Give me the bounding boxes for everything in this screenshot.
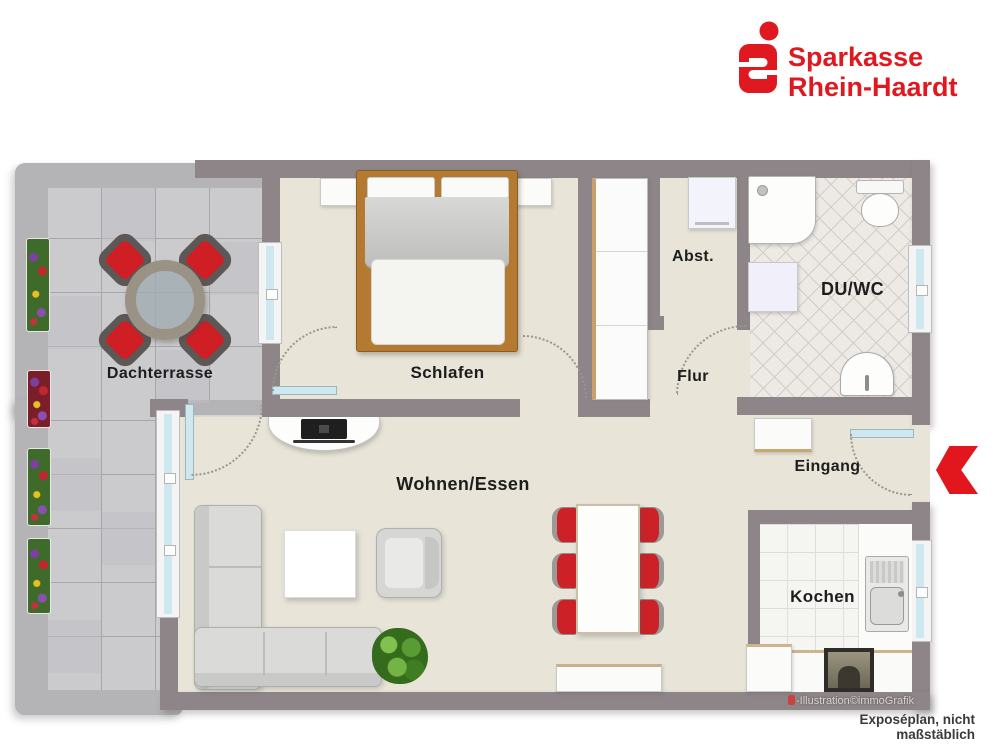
washing-machine	[688, 177, 736, 229]
pillow	[367, 177, 435, 199]
dining-chair	[638, 507, 664, 543]
dining-table	[576, 504, 640, 634]
shower	[748, 176, 816, 244]
credit-text: -Illustration©immoGrafik	[796, 695, 914, 707]
terrace-seating	[103, 238, 227, 362]
dining-chair	[638, 553, 664, 589]
wall-top	[195, 160, 930, 178]
sofa-horizontal	[194, 627, 382, 687]
entrance-arrow-icon	[936, 446, 978, 494]
bathroom-cabinet	[748, 262, 798, 312]
mini-logo-icon	[788, 695, 795, 705]
tv	[301, 419, 347, 439]
room-label-flur: Flur	[660, 368, 726, 386]
wall-kitchen-top	[748, 510, 930, 524]
nightstand	[320, 178, 360, 206]
wall-duwc-bottom	[737, 397, 930, 415]
wall-bedroom-bottom	[262, 399, 520, 417]
room-label-wohnen-essen: Wohnen/Essen	[370, 474, 556, 495]
dining-chair	[552, 599, 578, 635]
entry-cabinet	[754, 418, 812, 452]
flower-box	[27, 448, 51, 526]
terrace-table	[125, 260, 205, 340]
disclaimer: Exposéplan, nicht maßstäblich	[790, 712, 975, 742]
room-label-kochen: Kochen	[770, 587, 875, 607]
room-label-abst: Abst.	[655, 248, 731, 266]
illustration-credit: -Illustration©immoGrafik	[788, 695, 938, 709]
brand-line2: Rhein-Haardt	[788, 72, 958, 102]
wardrobe	[592, 178, 648, 400]
kitchen-cabinet	[746, 644, 792, 692]
flower-box	[27, 370, 51, 428]
dining-chair	[638, 599, 664, 635]
entry-door-gap	[912, 425, 930, 502]
brand-line1: Sparkasse	[788, 42, 958, 72]
pillow	[441, 177, 509, 199]
armchair	[376, 528, 442, 598]
bed	[356, 170, 518, 352]
room-label-schlafen: Schlafen	[385, 363, 510, 383]
sideboard	[556, 664, 662, 692]
sparkasse-logo-icon	[735, 20, 783, 104]
coffee-table	[284, 530, 356, 598]
toilet-tank	[856, 180, 904, 194]
window-large	[156, 410, 180, 618]
window	[258, 242, 282, 344]
room-label-duwc: DU/WC	[795, 279, 910, 300]
duvet	[371, 259, 505, 345]
wall-bedroom-right	[578, 178, 592, 402]
nightstand	[512, 178, 552, 206]
dining-chair	[552, 553, 578, 589]
plant	[372, 628, 428, 684]
toilet	[861, 193, 899, 227]
floorplan-page: Sparkasse Rhein-Haardt Dachterrasse	[0, 0, 1000, 750]
flower-box	[27, 538, 51, 614]
room-label-dachterrasse: Dachterrasse	[85, 365, 235, 383]
room-label-eingang: Eingang	[775, 458, 880, 476]
flower-box	[26, 238, 50, 332]
wall-under-wardrobe	[578, 399, 650, 417]
window	[908, 245, 932, 333]
stove	[824, 648, 874, 692]
brand-name: Sparkasse Rhein-Haardt	[788, 42, 958, 102]
dining-chair	[552, 507, 578, 543]
